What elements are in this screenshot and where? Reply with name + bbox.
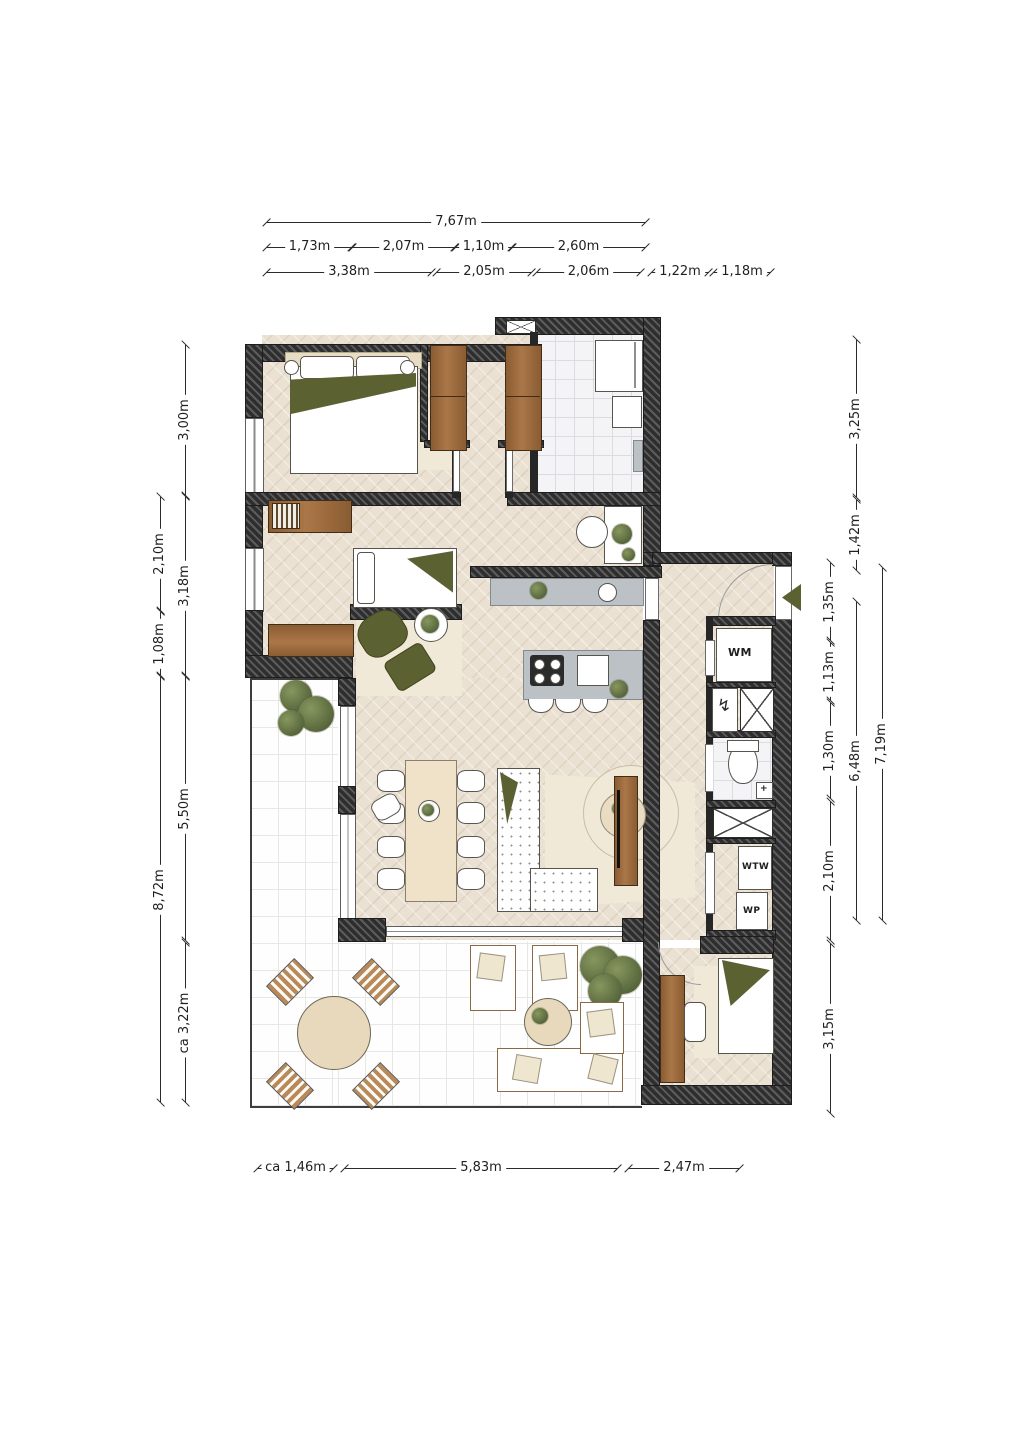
wtw-label: WTW (742, 862, 769, 872)
dim-left-872: 8,72m (160, 677, 161, 1102)
door-leaf (645, 578, 659, 620)
dim-right-113: 1,13m (830, 643, 831, 700)
dim-left-322: ca 3,22m (185, 943, 186, 1102)
wall (643, 317, 661, 557)
dining-chair (457, 868, 485, 890)
dining-chair (377, 836, 405, 858)
sliding-glass-door (386, 926, 624, 937)
shower-glass (634, 342, 636, 388)
plant (532, 1008, 548, 1024)
dim-top-122: 1,22m (652, 272, 708, 273)
dining-chair (377, 868, 405, 890)
basin-plus: + (760, 784, 768, 794)
door-leaf (705, 640, 715, 676)
dim-right-648: 6,48m (856, 602, 857, 920)
dining-chair (457, 802, 485, 824)
terrace-edge (250, 678, 252, 1108)
corner-plant (278, 710, 304, 736)
dim-top-338: 3,38m (267, 272, 431, 273)
shaft (740, 688, 774, 732)
desk-chair (684, 1002, 706, 1042)
toilet-tank (727, 740, 759, 752)
dim-left-300: 3,00m (185, 345, 186, 495)
cushion (476, 952, 505, 981)
shaft (713, 808, 773, 838)
wall (700, 936, 774, 954)
dim-right-315: 3,15m (830, 944, 831, 1113)
wall (338, 786, 356, 814)
dining-chair (457, 770, 485, 792)
wardrobe-divider (505, 396, 540, 397)
plant (610, 680, 628, 698)
wall (338, 678, 356, 706)
dim-left-318: 3,18m (185, 497, 186, 675)
dim-top-173: 1,73m (267, 247, 352, 248)
dim-right-325: 3,25m (856, 340, 857, 497)
window (340, 706, 356, 788)
dim-top-767: 7,67m (267, 222, 645, 223)
plant (422, 804, 434, 816)
dim-left-108: 1,08m (160, 612, 161, 675)
wall (706, 616, 776, 626)
radiator (633, 440, 643, 472)
pillow (300, 356, 354, 379)
wall (470, 566, 662, 578)
dim-right-210: 2,10m (830, 802, 831, 940)
dim-top-206: 2,06m (537, 272, 640, 273)
washing-machine-label: WM (728, 646, 752, 659)
kitchen-sink (598, 583, 617, 602)
island-sink (577, 655, 609, 686)
wall (245, 655, 353, 678)
dim-top-207: 2,07m (352, 247, 455, 248)
wall (706, 800, 776, 808)
wardrobe (430, 345, 467, 451)
dim-right-142: 1,42m (856, 500, 857, 570)
dining-chair (377, 770, 405, 792)
cushion (512, 1054, 542, 1084)
dim-top-205: 2,05m (437, 272, 531, 273)
dim-left-210: 2,10m (160, 497, 161, 610)
cushion (539, 953, 568, 982)
terrace-side-table (524, 998, 572, 1046)
desk-chair (576, 516, 608, 548)
plant (421, 615, 439, 633)
burner (550, 673, 561, 684)
dining-table (405, 760, 457, 902)
floor-plan: WM ↯ + WTW WP 7,67m 1,73m 2,07m 1,10m 2,… (0, 0, 1018, 1440)
tv (617, 790, 620, 868)
dim-right-135: 1,35m (830, 563, 831, 640)
books (272, 503, 300, 529)
sideboard (268, 624, 354, 657)
electric-bolt-icon: ↯ (717, 696, 731, 716)
bedside-lamp (284, 360, 299, 375)
window (245, 548, 264, 612)
burner (534, 673, 545, 684)
burner (550, 659, 561, 670)
plant (530, 582, 547, 599)
terrace-table (297, 996, 371, 1070)
bedside-lamp (400, 360, 415, 375)
wall (706, 838, 776, 844)
wall (338, 918, 386, 942)
terrace-edge (250, 1106, 642, 1108)
pillow (357, 552, 375, 604)
dim-bottom-247: 2,47m (629, 1168, 739, 1169)
sofa-seat (530, 868, 598, 912)
dim-right-719: 7,19m (882, 568, 883, 920)
wp-label: WP (743, 906, 760, 916)
kitchen-counter (490, 578, 644, 606)
wall (772, 552, 792, 566)
dim-top-260: 2,60m (512, 247, 645, 248)
door-leaf (506, 446, 513, 492)
cushion (586, 1008, 615, 1037)
wardrobe (505, 345, 542, 451)
dim-bottom-146: ca 1,46m (258, 1168, 333, 1169)
dim-top-110: 1,10m (455, 247, 512, 248)
burner (534, 659, 545, 670)
washbasin (612, 396, 642, 428)
door-leaf (453, 446, 460, 492)
plant (612, 524, 632, 544)
dim-top-118: 1,18m (714, 272, 770, 273)
wall (641, 1085, 792, 1105)
wall (772, 618, 792, 1105)
wall (652, 552, 782, 564)
wall (643, 620, 660, 1090)
dim-bottom-583: 5,83m (345, 1168, 617, 1169)
window (340, 814, 356, 920)
dining-chair (457, 836, 485, 858)
door-leaf (705, 852, 715, 914)
wardrobe-divider (430, 396, 465, 397)
dim-left-550: 5,50m (185, 677, 186, 940)
wall (507, 492, 661, 506)
dim-right-130: 1,30m (830, 703, 831, 798)
plant (622, 548, 635, 561)
window (245, 418, 264, 494)
wall (245, 344, 263, 418)
desk (660, 975, 685, 1083)
